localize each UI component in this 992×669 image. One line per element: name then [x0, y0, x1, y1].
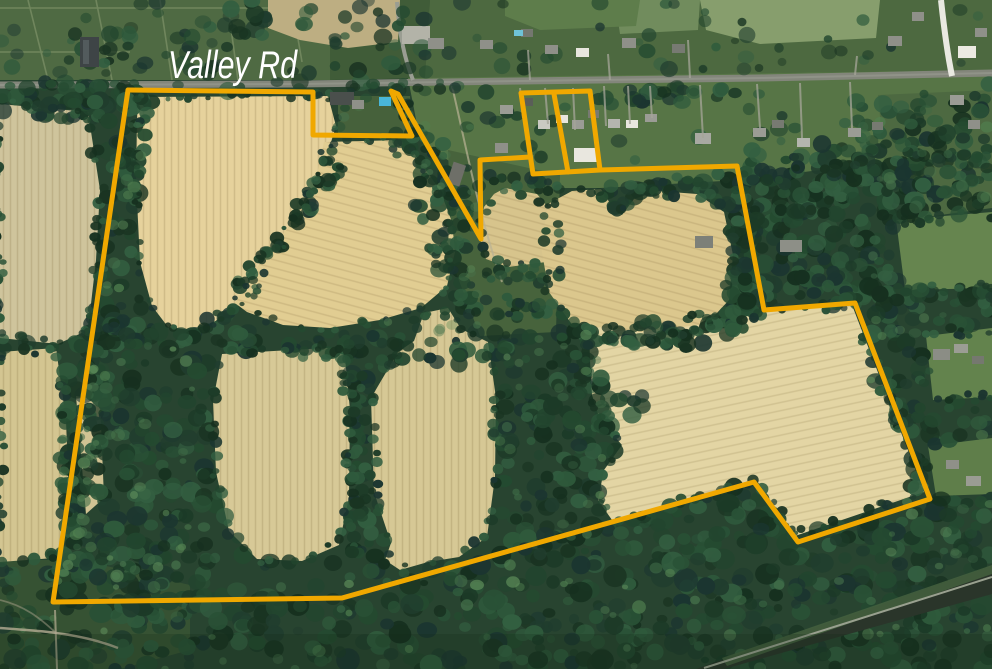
svg-text:Valley Rd: Valley Rd	[168, 44, 298, 87]
